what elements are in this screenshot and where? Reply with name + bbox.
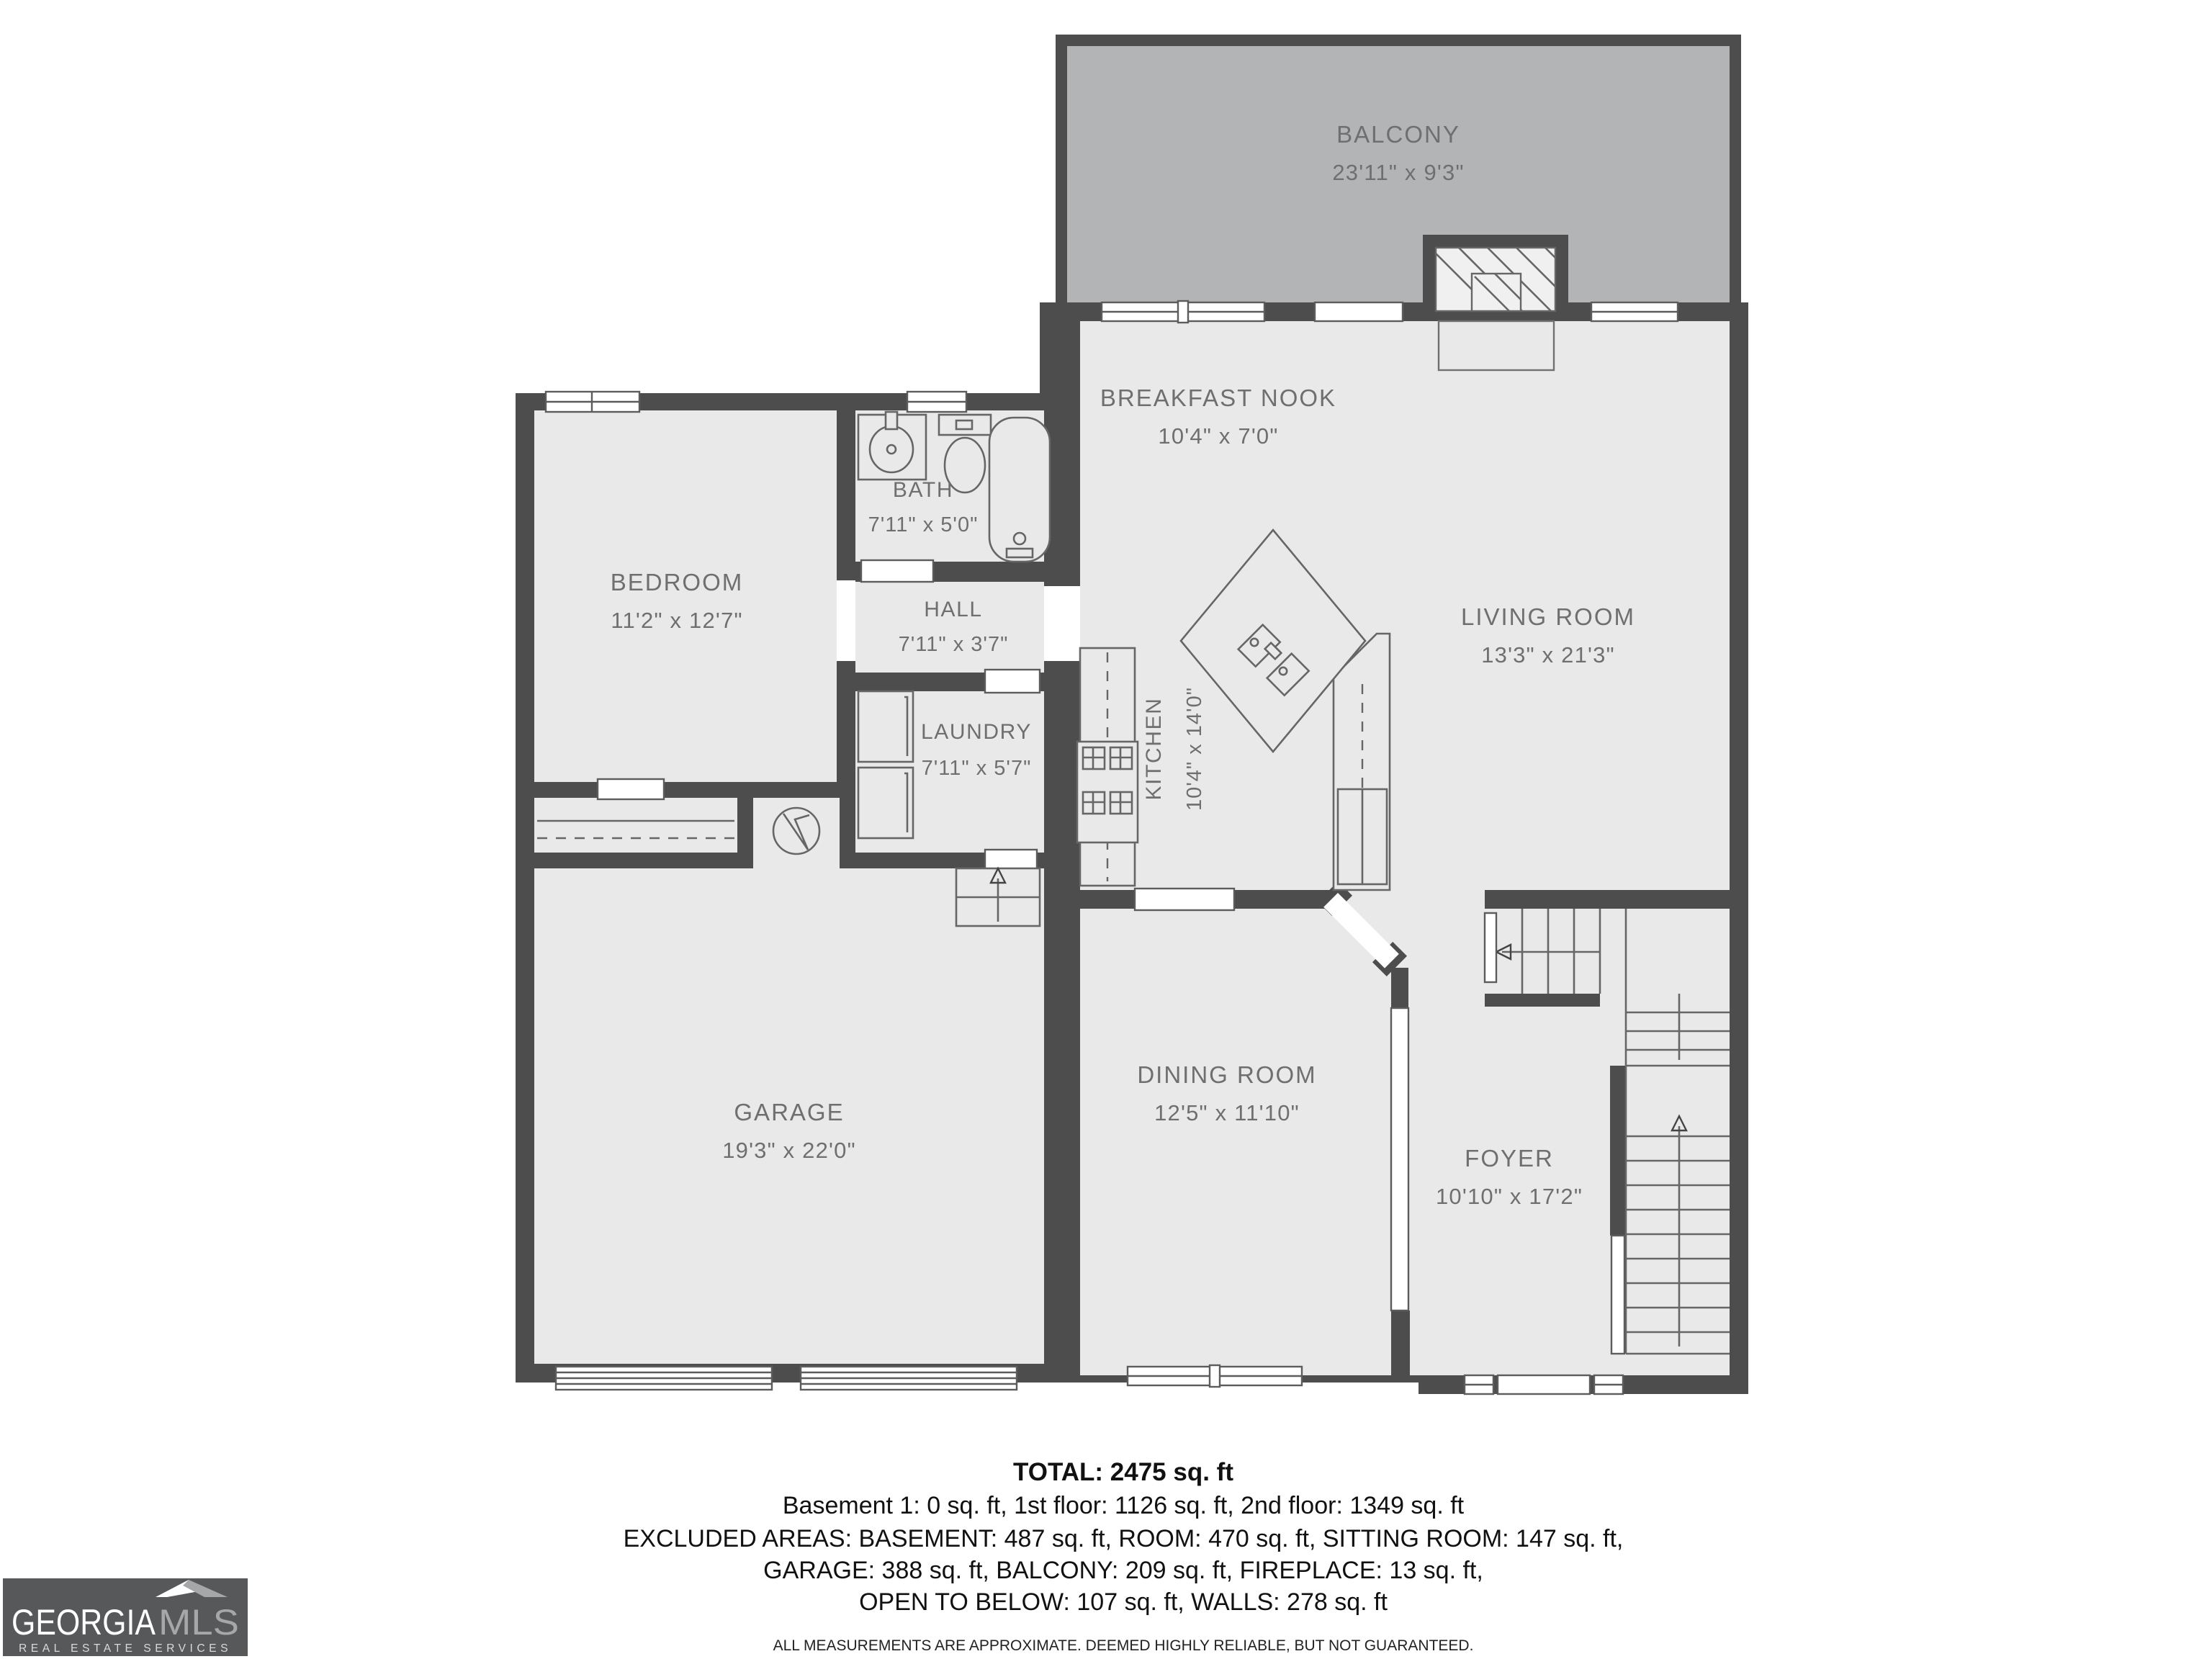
room-dims-bath: 7'11" x 5'0" xyxy=(868,513,979,536)
opening-dining-foyer xyxy=(1391,1008,1408,1310)
fireplace xyxy=(1423,235,1568,370)
room-dims-bedroom: 11'2" x 12'7" xyxy=(611,608,742,633)
wall-bedroom-bath xyxy=(837,410,855,580)
wall-bedroom-closet xyxy=(516,782,855,798)
brand-logo: GEORGIA MLS REAL ESTATE SERVICES xyxy=(3,1578,248,1656)
window-breakfast-mullion xyxy=(1178,301,1188,323)
water-heater-icon xyxy=(773,808,819,854)
door-bath xyxy=(861,560,933,582)
room-label-bath: BATH xyxy=(893,478,953,502)
wall-kitchen-dining-left xyxy=(1080,890,1135,909)
stairs-laundry xyxy=(956,868,1040,926)
stairs-newel-bottom xyxy=(1611,1236,1624,1354)
room-label-garage: GARAGE xyxy=(734,1099,844,1125)
toilet-flush xyxy=(956,421,972,429)
logo-brand-secondary: MLS xyxy=(158,1602,239,1642)
wall-closet-nook xyxy=(737,798,753,853)
sink-faucet xyxy=(886,412,897,429)
room-label-breakfast: BREAKFAST NOOK xyxy=(1100,385,1336,411)
room-label-dining: DINING ROOM xyxy=(1137,1061,1316,1088)
tub-faucet xyxy=(1007,549,1033,557)
footer-excluded-3: OPEN TO BELOW: 107 sq. ft, WALLS: 278 sq… xyxy=(859,1588,1388,1616)
sink-drain xyxy=(887,445,896,454)
wall-kitchen-dining-right xyxy=(1234,890,1331,909)
wall-closet-garage xyxy=(516,853,753,868)
room-dims-living: 13'3" x 21'3" xyxy=(1481,642,1615,667)
wall-nook-laundry xyxy=(840,798,855,868)
room-dims-kitchen: 10'4" x 14'0" xyxy=(1183,687,1206,811)
balcony-door xyxy=(1315,302,1403,321)
tub-drain xyxy=(1014,533,1025,544)
room-dims-laundry: 7'11" x 5'7" xyxy=(922,757,1032,780)
footer-floors: Basement 1: 0 sq. ft, 1st floor: 1126 sq… xyxy=(783,1492,1465,1519)
wall-foyer-stairs xyxy=(1610,1066,1626,1236)
room-label-kitchen: KITCHEN xyxy=(1142,698,1166,801)
wall-stair-flight xyxy=(1485,994,1600,1007)
footer-excluded-2: GARAGE: 388 sq. ft, BALCONY: 209 sq. ft,… xyxy=(763,1557,1483,1584)
footer-disclaimer: ALL MEASUREMENTS ARE APPROXIMATE. DEEMED… xyxy=(773,1637,1474,1654)
room-dims-hall: 7'11" x 3'7" xyxy=(899,633,1009,656)
opening-bedroom-hall xyxy=(837,580,855,661)
room-label-balcony: BALCONY xyxy=(1336,121,1460,148)
wall-stub-diagonal xyxy=(1391,968,1408,1008)
room-dims-dining: 12'5" x 11'10" xyxy=(1154,1100,1300,1125)
room-label-living: LIVING ROOM xyxy=(1461,603,1635,630)
dryer-icon xyxy=(858,768,913,838)
washer-icon xyxy=(858,691,913,762)
room-dims-breakfast: 10'4" x 7'0" xyxy=(1158,423,1278,449)
room-dims-foyer: 10'10" x 17'2" xyxy=(1436,1184,1583,1209)
door-hall xyxy=(985,670,1040,693)
room-dims-balcony: 23'11" x 9'3" xyxy=(1332,160,1464,185)
stove-icon xyxy=(1077,742,1138,842)
logo-tagline: REAL ESTATE SERVICES xyxy=(19,1642,232,1655)
front-door xyxy=(1498,1375,1590,1394)
room-dims-garage: 19'3" x 22'0" xyxy=(722,1138,856,1163)
door-closet xyxy=(598,779,664,799)
logo-brand-primary: GEORGIA xyxy=(12,1602,156,1642)
footer-excluded-1: EXCLUDED AREAS: BASEMENT: 487 sq. ft, RO… xyxy=(624,1525,1624,1552)
opening-kitchen-dining xyxy=(1135,889,1234,910)
wall-living-stairs xyxy=(1485,890,1730,909)
balcony: BALCONY 23'11" x 9'3" xyxy=(1061,40,1735,311)
wall-bedroom-hall xyxy=(837,661,855,782)
room-label-bedroom: BEDROOM xyxy=(611,569,744,595)
wall-stub-dining-foyer xyxy=(1391,1310,1410,1375)
floor-plan: BALCONY 23'11" x 9'3" xyxy=(0,0,2212,1659)
garage-door-right xyxy=(801,1367,1017,1390)
opening-hall-breakfast xyxy=(1044,586,1080,661)
room-label-hall: HALL xyxy=(924,598,982,621)
room-label-foyer: FOYER xyxy=(1465,1145,1554,1172)
window-dining-mullion xyxy=(1210,1365,1220,1387)
garage-door-left xyxy=(556,1367,772,1390)
room-label-laundry: LAUNDRY xyxy=(921,720,1032,744)
stairs-newel-top xyxy=(1485,913,1496,982)
footer-total: TOTAL: 2475 sq. ft xyxy=(1013,1458,1233,1486)
hearth xyxy=(1439,321,1554,370)
